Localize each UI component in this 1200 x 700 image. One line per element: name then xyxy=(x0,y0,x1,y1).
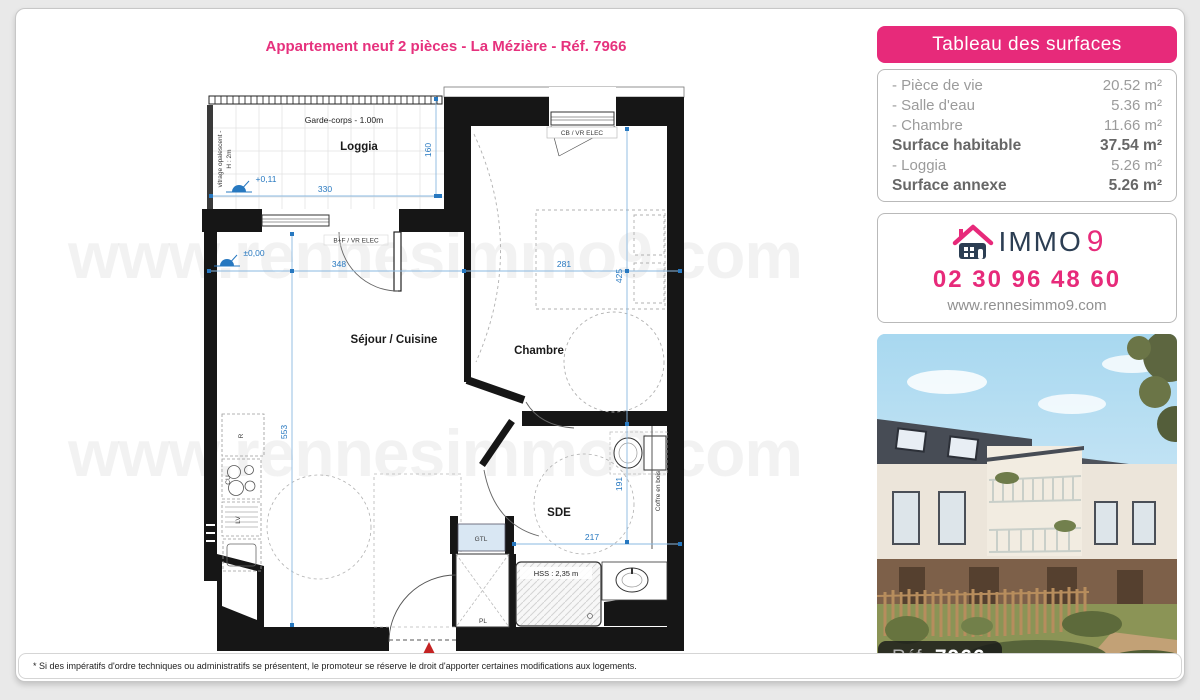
surface-label: - Loggia xyxy=(892,156,946,176)
room-sde: SDE xyxy=(547,507,571,519)
vitrage-note: vitrage opalescent - xyxy=(217,131,224,188)
dishwasher-label: LV xyxy=(235,516,242,524)
dim-281: 281 xyxy=(557,259,571,269)
building-illustration xyxy=(877,334,1177,678)
surface-label: Surface annexe xyxy=(892,176,1007,196)
garde-corps-label: Garde-corps - 1.00m xyxy=(305,115,383,125)
building-photo: Réf. 7966 xyxy=(877,334,1177,678)
dim-330: 330 xyxy=(318,184,332,194)
level-sejour: ±0,00 xyxy=(243,248,264,258)
dim-160: 160 xyxy=(423,143,433,157)
level-loggia: +0,11 xyxy=(256,174,277,184)
hss-label: HSS : 2,35 m xyxy=(534,569,579,578)
room-loggia: Loggia xyxy=(340,141,378,153)
brand-number: 9 xyxy=(1087,225,1104,259)
legal-footnote: * Si des impératifs d'ordre techniques o… xyxy=(18,653,1182,679)
surface-value: 5.36 m² xyxy=(1111,96,1162,116)
room-chambre: Chambre xyxy=(514,345,564,357)
furniture-chambre xyxy=(474,134,665,412)
agency-card: IMMO9 02 30 96 48 60 www.rennesimmo9.com xyxy=(877,213,1177,323)
page-title: Appartement neuf 2 pièces - La Mézière -… xyxy=(176,38,716,55)
table-row: - Loggia 5.26 m² xyxy=(892,156,1162,176)
agency-logo: IMMO9 xyxy=(951,222,1104,262)
table-row: - Salle d'eau 5.36 m² xyxy=(892,96,1162,116)
cb-vr-label: CB / VR ELEC xyxy=(561,130,604,137)
table-row-total: Surface annexe 5.26 m² xyxy=(892,176,1162,196)
gtl-label: GTL xyxy=(475,536,488,543)
surfaces-table: - Pièce de vie 20.52 m² - Salle d'eau 5.… xyxy=(877,69,1177,202)
surfaces-header: Tableau des surfaces xyxy=(877,26,1177,63)
floor-plan: 330 160 348 281 425 553 191 217 +0,11 ±0… xyxy=(194,84,699,669)
dim-553: 553 xyxy=(279,425,289,439)
agency-phone: 02 30 96 48 60 xyxy=(933,266,1121,294)
table-row: - Pièce de vie 20.52 m² xyxy=(892,76,1162,96)
table-row: - Chambre 11.66 m² xyxy=(892,116,1162,136)
brand-name: IMMO xyxy=(999,226,1083,258)
surface-label: - Chambre xyxy=(892,116,963,136)
dim-425: 425 xyxy=(614,269,624,283)
dim-191: 191 xyxy=(614,477,624,491)
room-sejour: Séjour / Cuisine xyxy=(351,334,438,346)
coffre-label: Coffre en bois xyxy=(655,470,662,511)
dim-348: 348 xyxy=(332,259,346,269)
dim-217: 217 xyxy=(585,532,599,542)
footnote-text: * Si des impératifs d'ordre techniques o… xyxy=(19,654,1181,678)
surface-label: - Salle d'eau xyxy=(892,96,975,116)
surface-value: 5.26 m² xyxy=(1111,156,1162,176)
surface-label: - Pièce de vie xyxy=(892,76,983,96)
house-logo-icon xyxy=(951,222,995,262)
surface-value: 37.54 m² xyxy=(1100,136,1162,156)
surface-label: Surface habitable xyxy=(892,136,1021,156)
pl-label: PL xyxy=(479,618,487,625)
vitrage-note-2: H : 2m xyxy=(226,149,233,168)
flyer-card: Appartement neuf 2 pièces - La Mézière -… xyxy=(15,8,1185,682)
bf-vr-label: B+F / VR ELEC xyxy=(333,238,379,245)
hob-label: CU xyxy=(225,475,232,485)
surface-value: 11.66 m² xyxy=(1104,116,1162,136)
agency-website: www.rennesimmo9.com xyxy=(947,297,1106,314)
table-row-total: Surface habitable 37.54 m² xyxy=(892,136,1162,156)
plan-labels: Garde-corps - 1.00m Loggia vitrage opale… xyxy=(217,115,662,625)
fridge-label: R xyxy=(238,433,245,438)
surface-value: 5.26 m² xyxy=(1109,176,1162,196)
surface-value: 20.52 m² xyxy=(1103,76,1162,96)
